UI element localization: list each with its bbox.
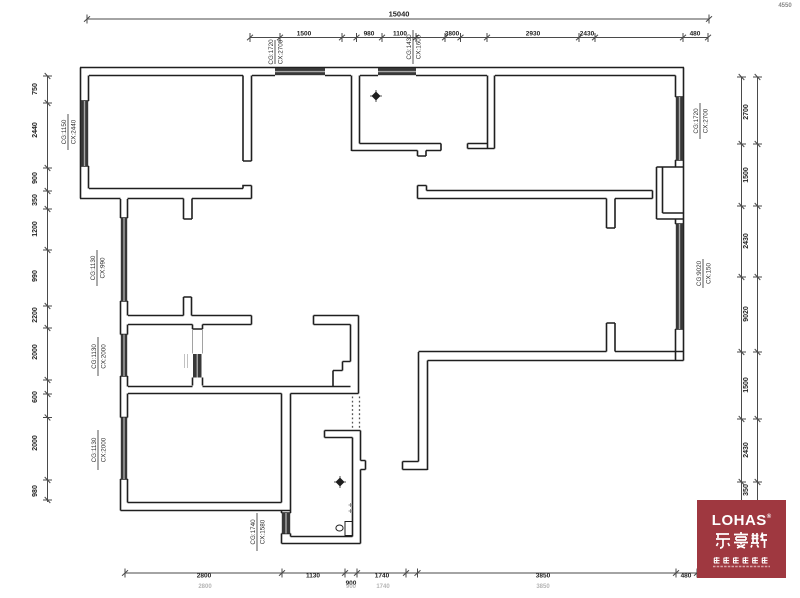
svg-text:350: 350	[32, 194, 39, 206]
svg-text:3850: 3850	[536, 584, 550, 590]
svg-text:15040: 15040	[389, 10, 410, 19]
svg-text:CG:9020: CG:9020	[696, 260, 703, 286]
svg-text:2000: 2000	[32, 435, 39, 451]
svg-text:CG:1130: CG:1130	[90, 255, 97, 280]
svg-text:750: 750	[32, 83, 39, 95]
svg-text:2930: 2930	[526, 31, 541, 38]
svg-text:CX:990: CX:990	[100, 257, 107, 279]
svg-text:2000: 2000	[32, 344, 39, 360]
svg-text:990: 990	[32, 270, 39, 282]
svg-text:480: 480	[681, 573, 692, 580]
svg-text:2800: 2800	[198, 584, 212, 590]
svg-text:1200: 1200	[32, 221, 39, 237]
svg-text:350: 350	[743, 484, 750, 496]
svg-text:2700: 2700	[743, 104, 750, 120]
svg-text:CG:1720: CG:1720	[693, 108, 700, 134]
svg-text:CX:2000: CX:2000	[101, 344, 108, 369]
svg-text:CG:1720: CG:1720	[268, 39, 275, 65]
svg-text:480: 480	[690, 31, 701, 38]
svg-text:2200: 2200	[32, 307, 39, 323]
svg-text:CX:2440: CX:2440	[71, 119, 78, 144]
svg-text:CX:1600: CX:1600	[416, 34, 423, 59]
svg-text:1500: 1500	[297, 31, 312, 38]
svg-text:1740: 1740	[376, 584, 390, 590]
svg-text:2440: 2440	[32, 122, 39, 138]
svg-text:CX:1580: CX:1580	[260, 519, 267, 544]
svg-text:CX:2700: CX:2700	[703, 108, 710, 133]
svg-text:4550: 4550	[778, 3, 792, 9]
svg-text:900: 900	[346, 584, 357, 590]
svg-text:CX:2700: CX:2700	[278, 39, 285, 64]
svg-text:CG:1150: CG:1150	[61, 119, 68, 144]
svg-text:2800: 2800	[197, 573, 212, 580]
svg-text:CG:1430: CG:1430	[406, 34, 413, 60]
svg-text:1500: 1500	[743, 377, 750, 393]
svg-text:900: 900	[32, 172, 39, 184]
svg-text:9020: 9020	[743, 306, 750, 322]
svg-text:2430: 2430	[743, 233, 750, 249]
svg-text:2430: 2430	[743, 442, 750, 458]
svg-text:1500: 1500	[743, 167, 750, 183]
svg-text:CG:1130: CG:1130	[91, 437, 98, 462]
svg-text:980: 980	[32, 485, 39, 497]
svg-text:CG:1740: CG:1740	[250, 519, 257, 545]
svg-text:3850: 3850	[536, 573, 551, 580]
svg-text:CX:2000: CX:2000	[101, 437, 108, 462]
svg-text:CX:150: CX:150	[706, 263, 713, 285]
svg-text:600: 600	[32, 391, 39, 403]
svg-text:1740: 1740	[375, 573, 390, 580]
svg-text:1130: 1130	[306, 573, 320, 580]
svg-text:980: 980	[364, 31, 375, 38]
svg-text:2430: 2430	[580, 31, 595, 38]
svg-text:CG:1130: CG:1130	[91, 344, 98, 369]
svg-text:3800: 3800	[445, 31, 460, 38]
